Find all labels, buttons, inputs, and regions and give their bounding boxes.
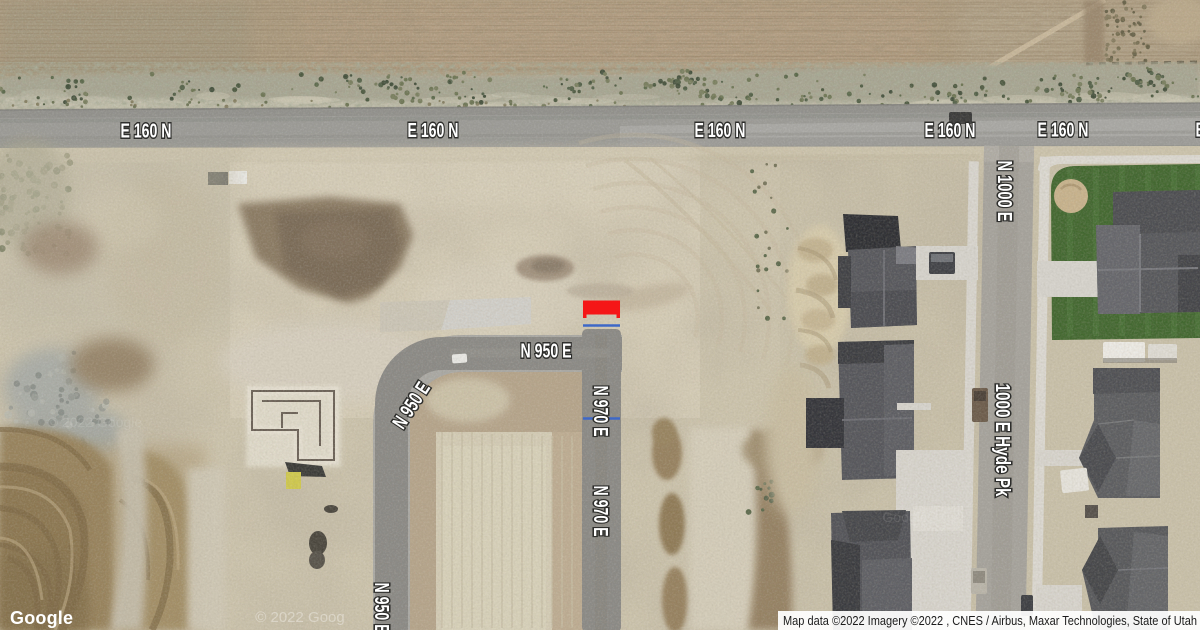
svg-text:E 160 N: E 160 N: [121, 121, 172, 143]
svg-text:Map data ©2022 Imagery ©2022 ,: Map data ©2022 Imagery ©2022 , CNES / Ai…: [783, 613, 1197, 628]
svg-text:E 160 N: E 160 N: [695, 120, 746, 142]
svg-text:N 1000 E: N 1000 E: [993, 161, 1015, 222]
svg-text:N 950 E: N 950 E: [521, 341, 572, 363]
svg-text:N 970 E: N 970 E: [589, 486, 611, 537]
svg-text:N 970 E: N 970 E: [589, 386, 611, 437]
svg-text:E 160 N: E 160 N: [1038, 120, 1089, 142]
svg-text:1000 E Hyde Pk: 1000 E Hyde Pk: [991, 384, 1013, 498]
svg-text:Google: Google: [10, 608, 73, 628]
svg-text:E 160 N: E 160 N: [1196, 120, 1200, 142]
svg-text:E 160 N: E 160 N: [925, 120, 976, 142]
svg-text:N 950 E: N 950 E: [370, 583, 392, 630]
svg-text:Google: Google: [882, 509, 927, 525]
svg-text:© 2022 Goog: © 2022 Goog: [255, 609, 344, 626]
svg-text:E 160 N: E 160 N: [408, 120, 459, 142]
svg-text:© 2022 Google: © 2022 Google: [48, 414, 143, 430]
